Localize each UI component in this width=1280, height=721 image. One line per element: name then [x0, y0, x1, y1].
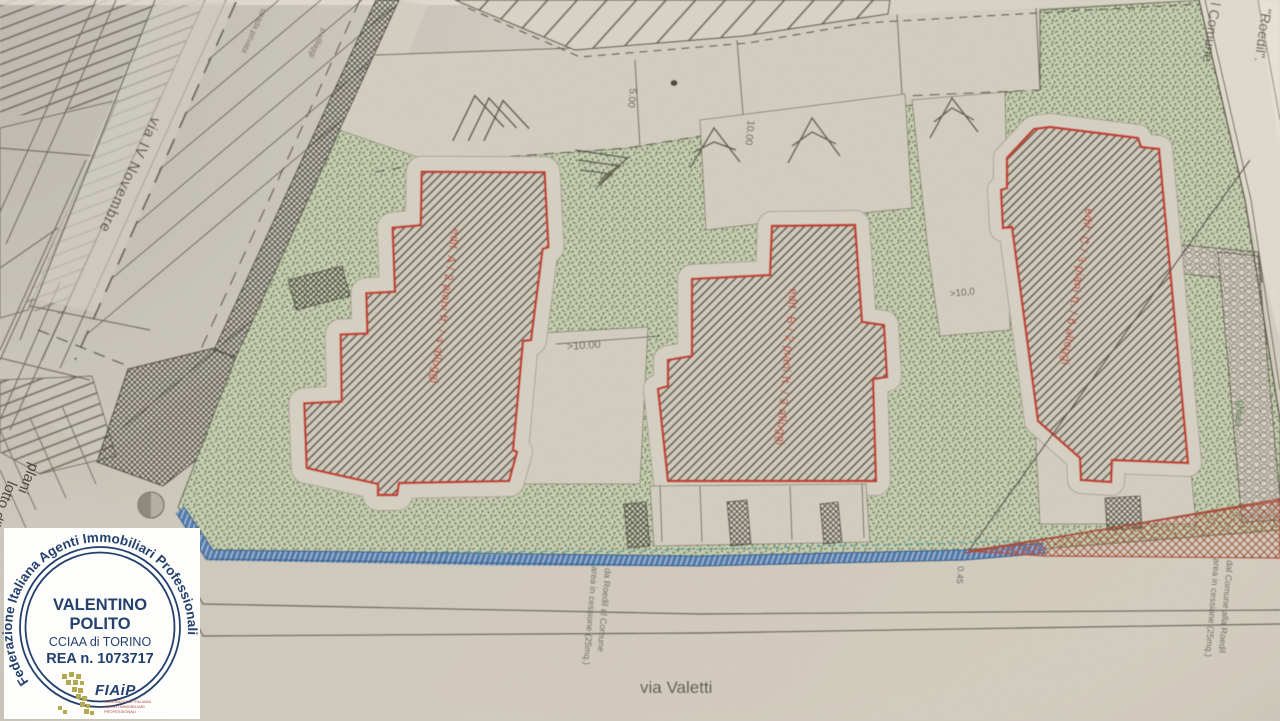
svg-text:POLITO: POLITO: [69, 615, 130, 633]
svg-text:FIAiP: FIAiP: [95, 682, 136, 699]
svg-text:PROFESSIONALI: PROFESSIONALI: [104, 709, 136, 714]
svg-text:REA n. 1073717: REA n. 1073717: [46, 651, 153, 667]
svg-text:CCIAA di TORINO: CCIAA di TORINO: [49, 635, 152, 649]
svg-text:VALENTINO: VALENTINO: [53, 596, 147, 614]
